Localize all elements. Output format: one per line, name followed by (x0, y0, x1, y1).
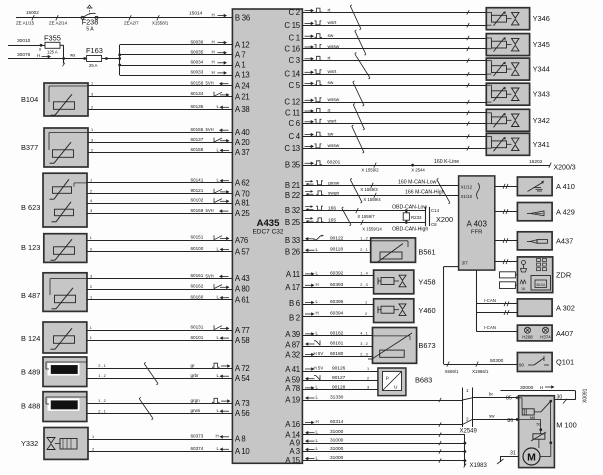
svg-text:B561: B561 (418, 248, 435, 257)
svg-text:sw: sw (328, 132, 334, 137)
svg-text:X1983: X1983 (470, 463, 488, 469)
svg-text:A 8: A 8 (235, 435, 246, 444)
svg-text:60393: 60393 (330, 282, 344, 288)
svg-text:A 40: A 40 (235, 128, 251, 137)
svg-text:60036: 60036 (191, 39, 204, 44)
svg-text:90121: 90121 (191, 188, 204, 193)
svg-text:A 13: A 13 (235, 71, 250, 80)
svg-text:60182: 60182 (330, 330, 344, 336)
svg-text:25 A: 25 A (89, 63, 98, 68)
svg-text:3: 3 (90, 209, 92, 213)
svg-text:X 1559/14: X 1559/14 (362, 226, 382, 231)
svg-text:X 1559/4: X 1559/4 (363, 197, 381, 202)
svg-text:A 58: A 58 (235, 336, 250, 345)
svg-text:31000: 31000 (330, 438, 344, 444)
svg-text:3: 3 (91, 138, 93, 142)
svg-text:1: 1 (91, 128, 93, 132)
svg-text:60035: 60035 (191, 49, 204, 54)
svg-text:H 5V: H 5V (314, 351, 324, 356)
svg-text:A 41: A 41 (285, 365, 300, 374)
svg-text:A 403: A 403 (466, 220, 487, 229)
svg-text:3 , 2: 3 , 2 (360, 342, 367, 346)
svg-text:A 1: A 1 (235, 61, 246, 70)
svg-text:B 22: B 22 (285, 191, 300, 200)
svg-text:wsrt: wsrt (328, 119, 337, 125)
svg-text:X 1559/7: X 1559/7 (357, 214, 375, 219)
svg-text:A 70: A 70 (235, 189, 251, 198)
svg-text:2 , 1: 2 , 1 (98, 364, 105, 368)
svg-text:A 19: A 19 (285, 396, 300, 405)
svg-text:A 3: A 3 (289, 447, 300, 456)
svg-text:2: 2 (367, 377, 369, 381)
svg-text:B673: B673 (418, 341, 435, 350)
svg-text:H: H (212, 40, 215, 45)
svg-text:B 488: B 488 (21, 402, 40, 411)
svg-text:A 57: A 57 (235, 247, 250, 256)
svg-text:A76: A76 (235, 236, 248, 245)
svg-text:A 56: A 56 (235, 409, 250, 418)
svg-text:18: 18 (521, 287, 525, 291)
svg-text:swgn: swgn (328, 191, 340, 196)
svg-text:60155: 60155 (191, 127, 204, 132)
svg-text:C 13: C 13 (284, 144, 299, 153)
svg-text:1: 1 (367, 367, 369, 371)
svg-text:160 K-Line: 160 K-Line (434, 159, 459, 165)
svg-text:grbr: grbr (191, 373, 200, 378)
svg-text:X2549: X2549 (460, 429, 478, 435)
svg-text:60135: 60135 (191, 104, 204, 109)
svg-text:A 77: A 77 (235, 326, 250, 335)
svg-text:90126: 90126 (332, 366, 346, 372)
svg-text:60137: 60137 (191, 137, 204, 142)
svg-text:A435: A435 (257, 218, 281, 229)
svg-text:60159: 60159 (191, 208, 204, 213)
svg-text:X1/12: X1/12 (461, 184, 473, 189)
svg-text:2: 2 (90, 285, 92, 289)
svg-text:1: 1 (90, 326, 92, 330)
svg-text:60102: 60102 (191, 198, 204, 203)
svg-text:A407: A407 (556, 329, 573, 338)
svg-text:16202: 16202 (529, 159, 543, 165)
svg-text:Y344: Y344 (533, 65, 550, 74)
svg-text:B 25: B 25 (285, 218, 301, 227)
svg-text:5VH: 5VH (206, 208, 214, 213)
svg-text:A 7: A 7 (235, 51, 246, 60)
svg-text:Y458: Y458 (418, 278, 435, 287)
svg-text:A 11: A 11 (286, 270, 300, 279)
svg-text:1: 1 (91, 82, 93, 86)
svg-text:31000: 31000 (330, 446, 344, 452)
svg-text:H: H (212, 60, 215, 65)
svg-text:ZE A2/14: ZE A2/14 (49, 21, 68, 26)
svg-text:1 , 2: 1 , 2 (98, 374, 105, 378)
svg-text:wssw: wssw (328, 144, 340, 149)
svg-text:I-CAN: I-CAN (484, 325, 496, 330)
svg-text:A 43: A 43 (235, 274, 250, 283)
svg-text:H: H (212, 13, 215, 18)
svg-text:60141: 60141 (191, 177, 204, 182)
svg-text:A 72: A 72 (235, 364, 250, 373)
svg-text:2 , 3: 2 , 3 (360, 352, 367, 356)
svg-text:B683: B683 (415, 376, 432, 385)
svg-text:60201: 60201 (327, 160, 341, 166)
svg-text:60134: 60134 (191, 91, 204, 96)
svg-text:OBD-CAN-Low: OBD-CAN-Low (392, 204, 427, 210)
svg-text:60394: 60394 (330, 311, 344, 317)
svg-text:I-CAN: I-CAN (484, 298, 496, 303)
svg-text:C 16: C 16 (284, 44, 299, 53)
svg-text:A437: A437 (556, 237, 573, 246)
svg-text:2: 2 (365, 312, 367, 316)
svg-text:1 , 2: 1 , 2 (360, 237, 367, 241)
svg-text:X1/10: X1/10 (461, 194, 473, 199)
svg-text:2: 2 (92, 447, 94, 451)
svg-text:50: 50 (537, 423, 541, 427)
svg-text:60033: 60033 (191, 70, 204, 75)
svg-text:3/7: 3/7 (462, 261, 469, 266)
svg-text:A 38: A 38 (235, 105, 250, 114)
svg-text:C14: C14 (431, 208, 440, 213)
svg-text:A 87: A 87 (285, 340, 300, 349)
svg-text:gr: gr (191, 363, 196, 368)
svg-text:X669/1: X669/1 (445, 369, 459, 374)
svg-text:A 12: A 12 (235, 40, 250, 49)
svg-text:1: 1 (90, 179, 92, 183)
svg-text:H: H (316, 311, 319, 316)
svg-text:166 M-CAN-High: 166 M-CAN-High (405, 190, 445, 196)
svg-text:86: 86 (507, 418, 513, 424)
svg-text:C 6: C 6 (289, 119, 300, 128)
svg-text:H: H (316, 419, 319, 424)
svg-text:ws: ws (70, 53, 76, 58)
svg-text:A 39: A 39 (285, 330, 300, 339)
svg-text:60181: 60181 (330, 341, 344, 347)
svg-text:60158: 60158 (191, 147, 204, 152)
svg-text:15002: 15002 (26, 10, 39, 15)
svg-text:B 36: B 36 (235, 13, 250, 22)
svg-text:30: 30 (557, 395, 563, 401)
svg-text:C 1: C 1 (289, 34, 300, 43)
svg-text:C 4: C 4 (289, 132, 301, 141)
svg-text:A 32: A 32 (285, 350, 300, 359)
svg-text:wsrt: wsrt (328, 20, 337, 26)
svg-text:OBD-CAN-High: OBD-CAN-High (392, 226, 428, 232)
svg-text:5VH: 5VH (206, 127, 214, 132)
svg-text:4 , 1: 4 , 1 (360, 332, 367, 336)
svg-text:sw: sw (328, 81, 334, 86)
svg-text:15014: 15014 (189, 11, 203, 17)
svg-text:60392: 60392 (330, 270, 344, 276)
svg-text:A 80: A 80 (235, 285, 251, 294)
svg-text:wsrt: wsrt (328, 69, 337, 75)
svg-text:2 , 1: 2 , 1 (360, 248, 367, 252)
svg-text:60151: 60151 (191, 235, 204, 240)
svg-text:X1966/1: X1966/1 (472, 369, 489, 374)
svg-text:B 487: B 487 (21, 291, 40, 300)
svg-text:1: 1 (90, 236, 92, 240)
svg-text:2: 2 (91, 105, 93, 109)
svg-text:3: 3 (90, 274, 92, 278)
svg-text:B 35: B 35 (285, 161, 301, 170)
svg-text:60100: 60100 (191, 246, 204, 251)
svg-text:X0091: X0091 (583, 388, 589, 403)
svg-text:90128: 90128 (332, 384, 346, 390)
svg-text:60374: 60374 (191, 446, 204, 451)
svg-text:8: 8 (39, 48, 41, 52)
svg-text:C 14: C 14 (284, 70, 300, 79)
svg-text:B 489: B 489 (21, 368, 40, 377)
svg-text:Y460: Y460 (418, 306, 435, 315)
svg-text:60314: 60314 (330, 419, 344, 425)
svg-text:1 , 4: 1 , 4 (360, 272, 367, 276)
svg-text:br: br (489, 392, 493, 397)
svg-text:1: 1 (365, 300, 367, 304)
svg-text:60161: 60161 (191, 273, 204, 278)
svg-text:F238: F238 (82, 18, 99, 27)
svg-text:A 16: A 16 (285, 420, 300, 429)
svg-text:A 10: A 10 (235, 447, 251, 456)
svg-text:H: H (540, 385, 543, 390)
svg-text:U: U (394, 385, 398, 391)
svg-text:X1558/1: X1558/1 (152, 21, 169, 26)
svg-text:60034: 60034 (191, 60, 204, 65)
svg-text:31: 31 (510, 451, 516, 457)
svg-text:50300: 50300 (490, 358, 504, 364)
svg-text:B 32: B 32 (285, 206, 300, 215)
svg-text:X 1559/2: X 1559/2 (361, 168, 379, 173)
svg-text:Y343: Y343 (533, 90, 550, 99)
svg-text:Y345: Y345 (533, 40, 550, 49)
svg-text:B134: B134 (536, 283, 544, 287)
svg-text:90122: 90122 (330, 235, 344, 241)
svg-text:p: p (386, 376, 389, 381)
svg-text:Y332: Y332 (21, 439, 38, 448)
svg-text:ZEA2/7: ZEA2/7 (124, 21, 139, 26)
svg-text:90127: 90127 (332, 375, 346, 381)
svg-text:C 3: C 3 (289, 56, 300, 65)
svg-text:2: 2 (90, 190, 92, 194)
svg-text:31000: 31000 (330, 429, 344, 435)
svg-text:60156: 60156 (191, 80, 204, 85)
svg-text:wssw: wssw (328, 98, 340, 103)
svg-text:2 , 3: 2 , 3 (360, 283, 367, 287)
svg-text:C 12: C 12 (284, 98, 299, 107)
svg-text:B377: B377 (21, 143, 38, 152)
svg-text:A 429: A 429 (556, 208, 575, 217)
svg-text:A 302: A 302 (556, 304, 575, 313)
svg-text:sw: sw (328, 34, 334, 39)
svg-text:EDC7 C32: EDC7 C32 (252, 229, 283, 236)
svg-text:A 25: A 25 (235, 209, 251, 218)
svg-text:166: 166 (328, 206, 336, 212)
svg-text:5VH: 5VH (206, 81, 214, 86)
svg-text:A 54: A 54 (235, 374, 251, 383)
svg-text:H: H (316, 282, 319, 287)
svg-text:A 24: A 24 (235, 82, 251, 91)
svg-text:30010: 30010 (17, 38, 31, 44)
svg-text:A 17: A 17 (285, 283, 300, 292)
svg-text:3: 3 (367, 386, 369, 390)
svg-text:2: 2 (91, 148, 93, 152)
svg-text:90: 90 (519, 363, 524, 368)
svg-text:A 20: A 20 (235, 138, 251, 147)
svg-text:sw: sw (489, 413, 495, 418)
svg-text:3: 3 (90, 248, 92, 252)
svg-text:4: 4 (90, 199, 92, 203)
svg-text:ZDR: ZDR (556, 271, 571, 280)
svg-text:A 81: A 81 (235, 199, 250, 208)
svg-text:X200: X200 (436, 215, 453, 224)
svg-text:H: H (212, 50, 215, 55)
svg-text:A 59: A 59 (285, 375, 300, 384)
svg-text:60162: 60162 (191, 284, 204, 289)
svg-text:30076: 30076 (17, 52, 31, 58)
svg-text:H: H (37, 53, 40, 58)
svg-text:X200/3: X200/3 (554, 164, 576, 171)
svg-text:1: 1 (90, 296, 92, 300)
svg-text:A 15: A 15 (285, 456, 301, 465)
svg-text:A 73: A 73 (235, 399, 250, 408)
svg-text:F355: F355 (44, 34, 61, 43)
svg-text:ZE A1/15: ZE A1/15 (16, 21, 35, 26)
svg-text:90118: 90118 (330, 247, 343, 253)
svg-text:X 2544: X 2544 (411, 168, 425, 173)
svg-text:B 123: B 123 (21, 243, 40, 252)
svg-text:60131: 60131 (191, 325, 204, 330)
svg-text:H: H (212, 70, 215, 75)
svg-text:1: 1 (92, 435, 94, 439)
svg-text:A 78: A 78 (285, 384, 300, 393)
svg-text:B 124: B 124 (21, 334, 40, 343)
svg-text:gnsw: gnsw (328, 181, 340, 186)
svg-text:A 62: A 62 (235, 179, 250, 188)
svg-text:60373: 60373 (191, 434, 204, 439)
svg-text:5VH: 5VH (206, 273, 214, 278)
svg-text:X 1559/3: X 1559/3 (360, 187, 378, 192)
svg-text:85: 85 (506, 396, 512, 402)
svg-text:H 5V: H 5V (314, 366, 324, 371)
svg-text:H: H (216, 434, 219, 439)
svg-text:60180: 60180 (330, 351, 344, 357)
svg-text:31330: 31330 (330, 395, 344, 401)
svg-text:C 5: C 5 (289, 81, 301, 90)
svg-text:125 A: 125 A (47, 50, 58, 55)
svg-text:M: M (527, 452, 536, 464)
svg-text:A 410: A 410 (556, 182, 575, 191)
svg-text:1: 1 (90, 336, 92, 340)
svg-text:A 37: A 37 (235, 148, 250, 157)
svg-text:grws: grws (191, 408, 201, 413)
svg-text:A 61: A 61 (235, 296, 250, 305)
svg-text:165: 165 (328, 217, 336, 223)
svg-text:M 100: M 100 (556, 421, 577, 430)
svg-text:C 11: C 11 (285, 108, 300, 117)
svg-text:B 6: B 6 (289, 299, 300, 308)
svg-text:A 21: A 21 (235, 92, 250, 101)
svg-text:R233: R233 (411, 215, 422, 220)
svg-text:H374: H374 (540, 335, 551, 340)
svg-text:5 A: 5 A (86, 27, 94, 33)
svg-text:FFR: FFR (471, 230, 482, 236)
svg-text:Y342: Y342 (533, 116, 550, 125)
svg-text:31000: 31000 (330, 455, 344, 461)
svg-text:grgn: grgn (191, 398, 201, 403)
svg-text:B104: B104 (21, 95, 38, 104)
svg-text:wssw: wssw (328, 45, 340, 50)
svg-text:B 21: B 21 (285, 181, 300, 190)
svg-text:Y346: Y346 (533, 14, 550, 23)
svg-text:60160: 60160 (191, 294, 204, 299)
svg-text:1 , 2: 1 , 2 (98, 399, 105, 403)
svg-text:160 M-CAN-Low: 160 M-CAN-Low (398, 179, 437, 185)
svg-text:Q101: Q101 (556, 358, 574, 367)
svg-text:F163: F163 (86, 46, 103, 55)
svg-text:B 26: B 26 (285, 247, 300, 256)
svg-text:2 , 1: 2 , 1 (98, 409, 105, 413)
svg-text:Y341: Y341 (533, 140, 550, 149)
svg-text:60101: 60101 (191, 335, 204, 340)
svg-text:3: 3 (91, 93, 93, 97)
svg-text:C 15: C 15 (284, 21, 300, 30)
svg-text:B 33: B 33 (285, 236, 300, 245)
svg-text:60395: 60395 (330, 299, 344, 305)
svg-text:B 2: B 2 (289, 313, 300, 322)
svg-text:C 2: C 2 (289, 8, 300, 17)
svg-text:B 623: B 623 (21, 203, 40, 212)
svg-text:H298: H298 (522, 335, 533, 340)
